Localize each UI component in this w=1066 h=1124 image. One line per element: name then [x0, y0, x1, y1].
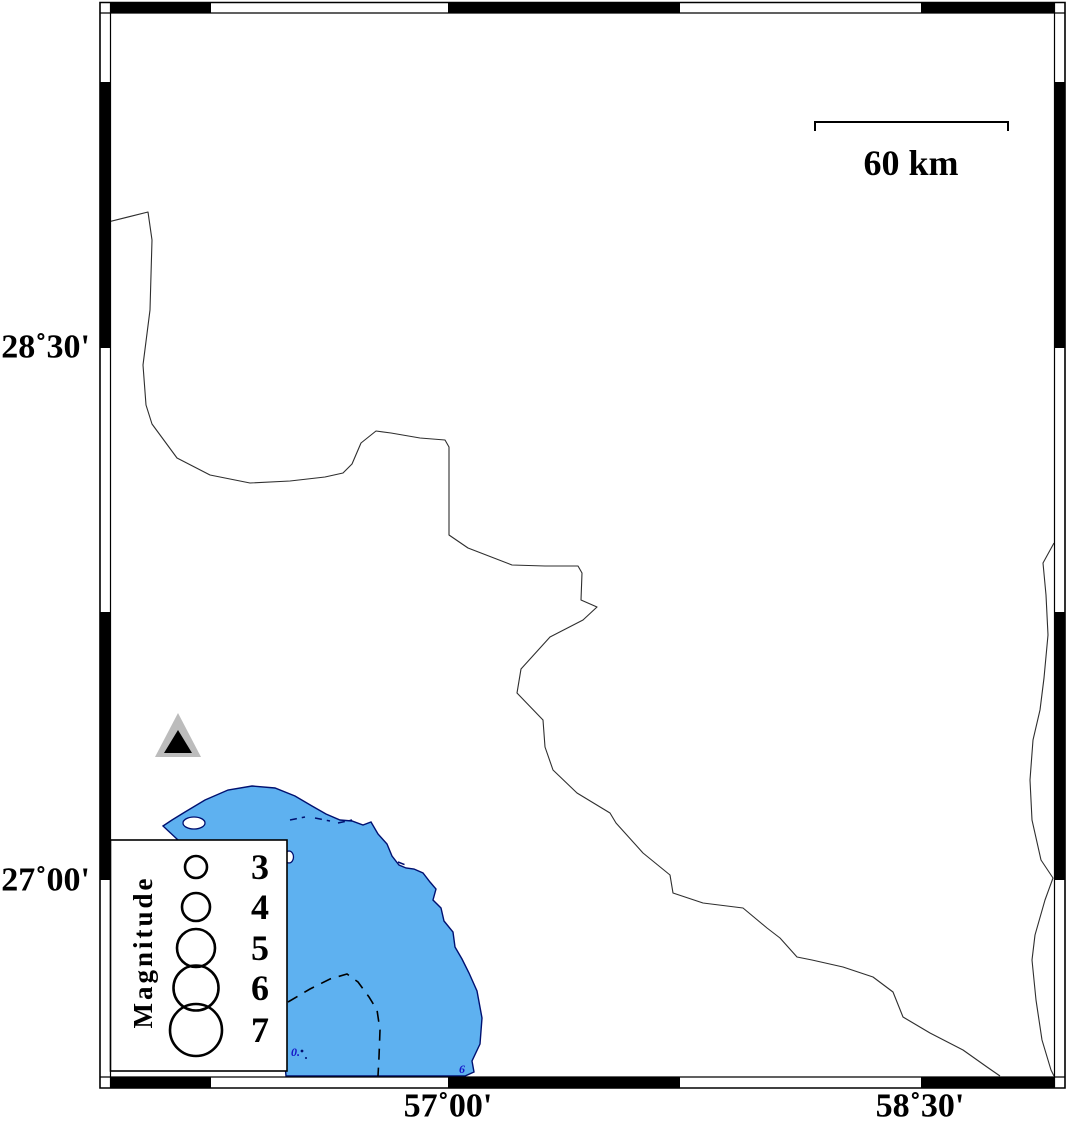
- map-figure: 6 0. 28˚30' 27˚00' 57˚00' 58˚30' 60 km M…: [0, 0, 1066, 1124]
- legend-value-m5: 5: [251, 928, 269, 968]
- frame-band-bottom: [110, 1077, 1055, 1088]
- frame-band-top: [110, 3, 1055, 14]
- frame-band-left: [100, 82, 111, 880]
- lon-label-5830: 58˚30': [876, 1088, 965, 1124]
- scale-bar-label: 60 km: [863, 143, 958, 183]
- coastal-spit: [183, 817, 205, 829]
- legend-value-m7: 7: [251, 1010, 269, 1050]
- map-canvas: 6 0. 28˚30' 27˚00' 57˚00' 58˚30' 60 km M…: [0, 0, 1066, 1124]
- bathy-label: 6: [459, 1062, 465, 1076]
- islet-dot: [301, 1050, 304, 1053]
- legend-title: Magnitude: [128, 875, 158, 1028]
- boundary-line-east: [1030, 543, 1054, 1076]
- magnitude-legend: Magnitude 3 4 5 6 7: [111, 840, 288, 1071]
- lat-label-2830: 28˚30': [1, 329, 90, 366]
- islet-dot: [305, 1057, 307, 1059]
- lon-label-5700: 57˚00': [404, 1088, 493, 1124]
- legend-value-m6: 6: [251, 968, 269, 1008]
- scale-bar: 60 km: [815, 122, 1008, 183]
- frame-band-right: [1055, 82, 1066, 880]
- bathy-label: 0.: [291, 1045, 300, 1059]
- legend-value-m4: 4: [251, 887, 269, 927]
- lat-label-2700: 27˚00': [1, 862, 90, 899]
- scale-bar-bracket: [815, 122, 1008, 131]
- legend-value-m3: 3: [251, 847, 269, 887]
